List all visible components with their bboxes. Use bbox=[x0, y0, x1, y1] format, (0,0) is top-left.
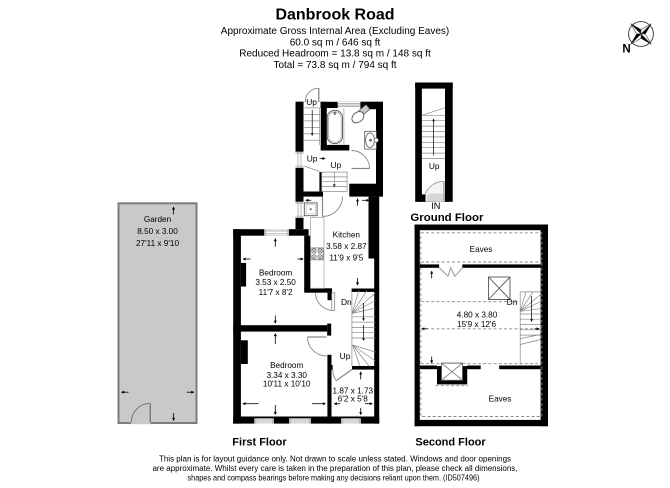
svg-text:First Floor: First Floor bbox=[232, 436, 287, 448]
svg-text:10'11 x 10'10: 10'11 x 10'10 bbox=[263, 380, 311, 389]
svg-text:Bedroom: Bedroom bbox=[270, 361, 303, 370]
svg-text:Up: Up bbox=[429, 161, 440, 171]
svg-text:11'7 x 8'2: 11'7 x 8'2 bbox=[259, 288, 293, 297]
svg-text:Garden: Garden bbox=[144, 215, 172, 224]
svg-text:Up: Up bbox=[307, 154, 318, 164]
svg-text:15'9 x 12'6: 15'9 x 12'6 bbox=[457, 320, 497, 329]
svg-text:are approximate. Whilst every: are approximate. Whilst every care is ta… bbox=[152, 464, 517, 473]
svg-text:Eaves: Eaves bbox=[489, 395, 512, 404]
svg-text:60.0 sq m / 646 sq ft: 60.0 sq m / 646 sq ft bbox=[290, 37, 381, 48]
svg-text:Dn: Dn bbox=[507, 297, 518, 307]
svg-text:8.50 x 3.00: 8.50 x 3.00 bbox=[137, 227, 178, 236]
svg-text:Ground Floor: Ground Floor bbox=[410, 212, 484, 224]
svg-text:Bedroom: Bedroom bbox=[259, 268, 292, 277]
svg-text:11'9 x 9'5: 11'9 x 9'5 bbox=[329, 253, 363, 262]
svg-text:Up: Up bbox=[331, 160, 342, 170]
svg-text:3.53 x 2.50: 3.53 x 2.50 bbox=[255, 278, 296, 287]
svg-text:3.58 x 2.87: 3.58 x 2.87 bbox=[326, 242, 367, 251]
svg-text:6'2 x 5'8: 6'2 x 5'8 bbox=[338, 395, 368, 404]
svg-text:N: N bbox=[622, 44, 630, 56]
svg-text:27'11 x 9'10: 27'11 x 9'10 bbox=[136, 239, 179, 248]
svg-text:This plan is for layout guidan: This plan is for layout guidance only. N… bbox=[159, 455, 511, 464]
svg-text:Total = 73.8 sq m / 794 sq ft: Total = 73.8 sq m / 794 sq ft bbox=[273, 60, 396, 71]
svg-text:Danbrook Road: Danbrook Road bbox=[275, 7, 394, 24]
svg-text:Reduced Headroom = 13.8 sq m /: Reduced Headroom = 13.8 sq m / 148 sq ft bbox=[239, 49, 431, 60]
svg-text:Approximate Gross Internal Are: Approximate Gross Internal Area (Excludi… bbox=[221, 26, 449, 37]
svg-text:Up: Up bbox=[306, 97, 317, 107]
svg-text:Second Floor: Second Floor bbox=[415, 436, 486, 448]
svg-text:Kitchen: Kitchen bbox=[333, 230, 361, 239]
svg-text:IN: IN bbox=[431, 201, 440, 211]
svg-text:Eaves: Eaves bbox=[470, 245, 493, 254]
svg-text:Dn: Dn bbox=[341, 297, 352, 307]
svg-text:shapes and compass bearings be: shapes and compass bearings before makin… bbox=[188, 474, 480, 483]
svg-text:Up: Up bbox=[340, 351, 351, 361]
svg-text:4.80 x 3.80: 4.80 x 3.80 bbox=[457, 311, 498, 320]
